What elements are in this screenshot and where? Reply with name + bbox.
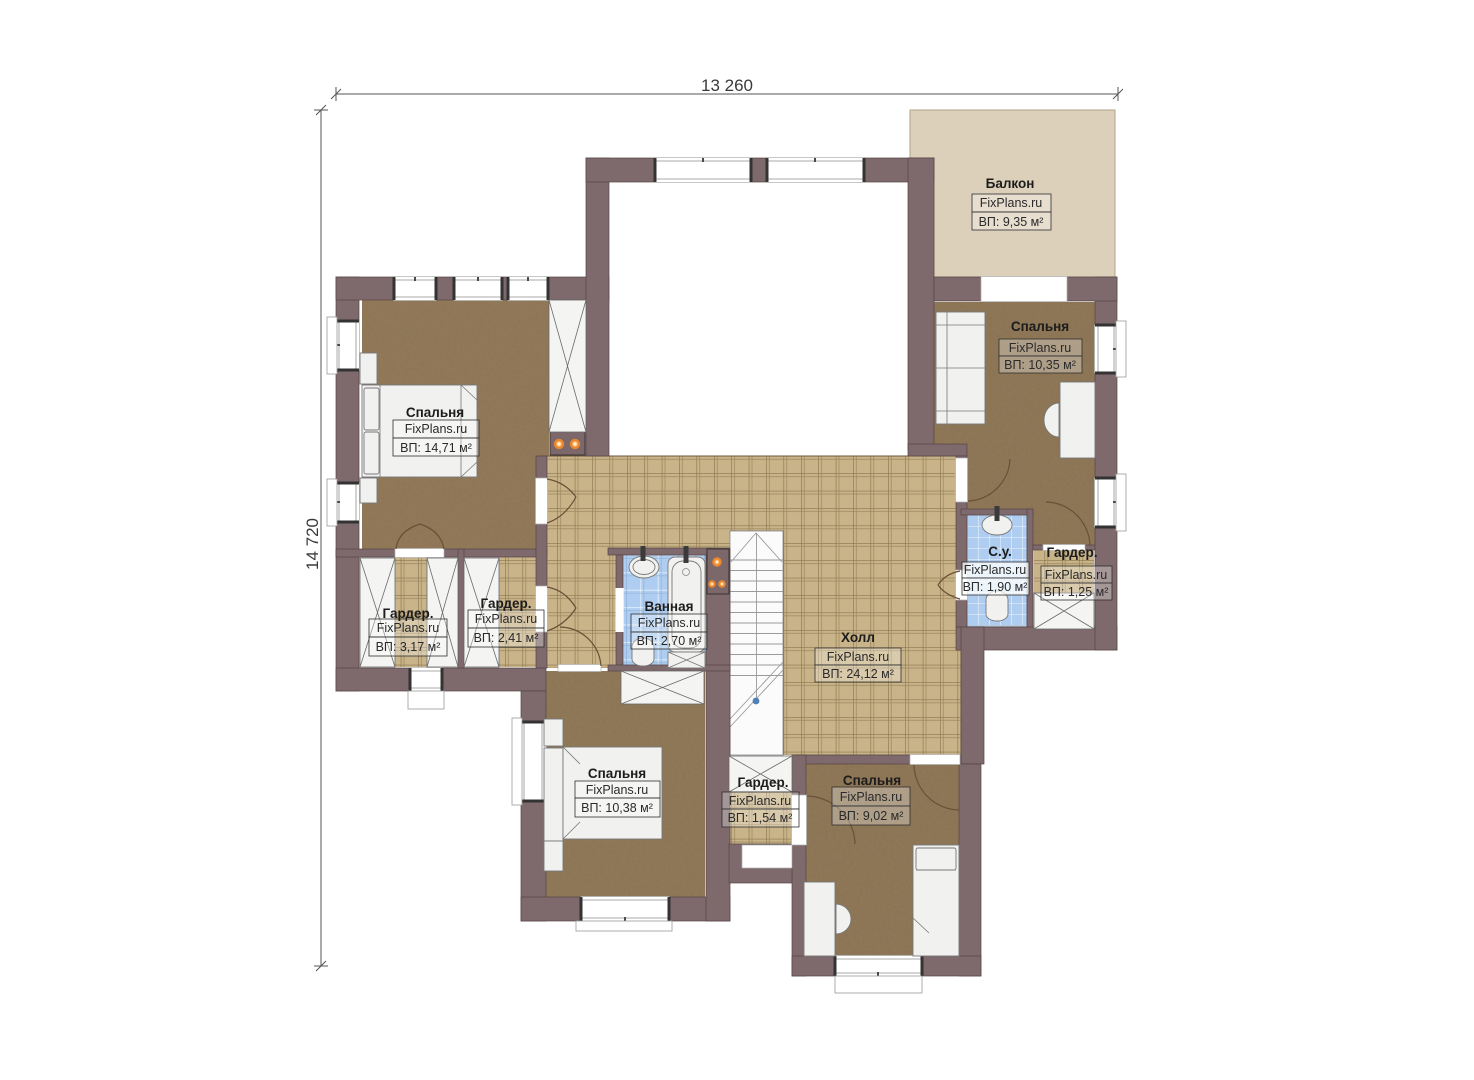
svg-text:Холл: Холл	[841, 630, 875, 645]
svg-text:13 260: 13 260	[701, 76, 753, 95]
svg-text:Гардер.: Гардер.	[738, 775, 789, 790]
svg-text:FixPlans.ru: FixPlans.ru	[729, 794, 792, 808]
svg-text:ВП: 24,12 м²: ВП: 24,12 м²	[822, 667, 894, 681]
svg-text:FixPlans.ru: FixPlans.ru	[964, 563, 1027, 577]
svg-text:FixPlans.ru: FixPlans.ru	[1045, 568, 1108, 582]
svg-text:Спальня: Спальня	[406, 405, 464, 420]
svg-text:FixPlans.ru: FixPlans.ru	[475, 612, 538, 626]
svg-text:ВП: 1,54 м²: ВП: 1,54 м²	[728, 811, 793, 825]
svg-text:Спальня: Спальня	[588, 766, 646, 781]
svg-text:FixPlans.ru: FixPlans.ru	[586, 783, 649, 797]
svg-text:ВП: 3,17 м²: ВП: 3,17 м²	[376, 640, 441, 654]
svg-text:ВП: 2,41 м²: ВП: 2,41 м²	[474, 631, 539, 645]
svg-text:ВП: 10,35 м²: ВП: 10,35 м²	[1004, 358, 1076, 372]
svg-text:ВП: 9,35 м²: ВП: 9,35 м²	[979, 215, 1044, 229]
svg-text:ВП: 2,70 м²: ВП: 2,70 м²	[637, 634, 702, 648]
svg-text:FixPlans.ru: FixPlans.ru	[827, 650, 890, 664]
svg-text:ВП: 10,38 м²: ВП: 10,38 м²	[581, 801, 653, 815]
svg-text:FixPlans.ru: FixPlans.ru	[638, 616, 701, 630]
svg-text:FixPlans.ru: FixPlans.ru	[1009, 341, 1072, 355]
svg-text:ВП: 1,90 м²: ВП: 1,90 м²	[963, 580, 1028, 594]
svg-text:14 720: 14 720	[303, 518, 322, 570]
svg-text:ВП: 14,71 м²: ВП: 14,71 м²	[400, 441, 472, 455]
svg-text:Гардер.: Гардер.	[481, 596, 532, 611]
svg-text:Гардер.: Гардер.	[383, 606, 434, 621]
svg-text:Гардер.: Гардер.	[1047, 545, 1098, 560]
svg-text:Балкон: Балкон	[986, 176, 1035, 191]
svg-text:FixPlans.ru: FixPlans.ru	[405, 422, 468, 436]
svg-text:ВП: 9,02 м²: ВП: 9,02 м²	[839, 809, 904, 823]
svg-text:Спальня: Спальня	[843, 773, 901, 788]
svg-text:FixPlans.ru: FixPlans.ru	[377, 621, 440, 635]
svg-text:С.у.: С.у.	[988, 544, 1012, 559]
svg-text:Ванная: Ванная	[645, 599, 694, 614]
svg-text:Спальня: Спальня	[1011, 319, 1069, 334]
svg-text:ВП: 1,25 м²: ВП: 1,25 м²	[1044, 585, 1109, 599]
svg-text:FixPlans.ru: FixPlans.ru	[840, 790, 903, 804]
svg-text:FixPlans.ru: FixPlans.ru	[980, 196, 1043, 210]
